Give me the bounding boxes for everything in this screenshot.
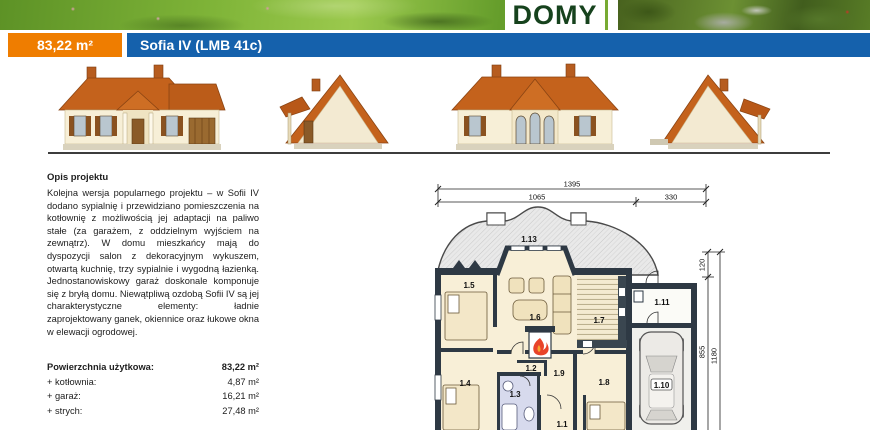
area-value: 83,22 m² bbox=[222, 360, 259, 375]
room-label-wc: 1.2 bbox=[525, 364, 537, 373]
area-value: 16,21 m² bbox=[222, 389, 259, 404]
project-description: Opis projektu Kolejna wersja popularnego… bbox=[47, 172, 259, 338]
table-row: + strych: 27,48 m² bbox=[47, 404, 259, 419]
room-label-hall: 1.9 bbox=[553, 369, 565, 378]
photo-banner: DOMY bbox=[0, 0, 870, 30]
room-label-livingroom: 1.6 bbox=[529, 313, 541, 322]
elevations-ground-line bbox=[48, 152, 830, 154]
floor-plan: 1395 1065 330 bbox=[425, 180, 725, 430]
table-row: + kotłownia: 4,87 m² bbox=[47, 375, 259, 390]
dim-1180: 1180 bbox=[710, 348, 719, 364]
area-value: 27,48 m² bbox=[222, 404, 259, 419]
dim-total-width: 1395 bbox=[564, 180, 581, 189]
area-label: + strych: bbox=[47, 404, 82, 419]
room-label-bedroom2: 1.4 bbox=[459, 379, 471, 388]
area-badge: 83,22 m² bbox=[8, 33, 122, 57]
dim-855: 855 bbox=[698, 346, 707, 359]
description-body: Kolejna wersja popularnego projektu – w … bbox=[47, 187, 259, 338]
dim-width-garage: 330 bbox=[665, 193, 678, 202]
project-sheet: DOMY 83,22 m² Sofia IV (LMB 41c) bbox=[0, 0, 870, 430]
dimension-lines-right bbox=[702, 249, 725, 430]
area-label: + garaż: bbox=[47, 389, 81, 404]
elevation-front-drawing bbox=[57, 63, 231, 155]
room-label-boilerroom: 1.11 bbox=[654, 298, 670, 307]
room-label-garage: 1.10 bbox=[654, 381, 670, 390]
room-label-bedroom3: 1.8 bbox=[598, 378, 610, 387]
room-label-bedroom1: 1.5 bbox=[463, 281, 475, 290]
fireplace-icon bbox=[525, 326, 555, 358]
areas-table: Powierzchnia użytkowa: 83,22 m² + kotłow… bbox=[47, 360, 259, 430]
boiler-icon bbox=[634, 291, 643, 302]
area-label: Powierzchnia użytkowa: bbox=[47, 360, 154, 375]
dim-width-main: 1065 bbox=[529, 193, 546, 202]
car-icon bbox=[639, 332, 684, 424]
publisher-logo: DOMY bbox=[505, 0, 605, 30]
arched-windows bbox=[516, 113, 554, 144]
room-label-bathroom: 1.3 bbox=[509, 390, 521, 399]
logo-text: DOMY bbox=[513, 3, 598, 28]
elevation-side-left-drawing bbox=[278, 63, 396, 155]
table-row: Powierzchnia użytkowa: 83,22 m² bbox=[47, 360, 259, 375]
table-row: + garaż: 16,21 m² bbox=[47, 389, 259, 404]
room-label-kitchen: 1.7 bbox=[593, 316, 605, 325]
description-heading: Opis projektu bbox=[47, 172, 259, 183]
elevation-side-right-drawing bbox=[648, 63, 776, 155]
elevation-garden-drawing bbox=[448, 61, 622, 155]
bay-windows bbox=[511, 246, 561, 251]
garden-photo-right bbox=[618, 0, 870, 30]
room-label-terrace: 1.13 bbox=[521, 235, 537, 244]
area-value: 4,87 m² bbox=[227, 375, 259, 390]
area-label: + kotłownia: bbox=[47, 375, 96, 390]
page-title: Sofia IV (LMB 41c) bbox=[127, 33, 870, 57]
room-label-entrance: 1.1 bbox=[556, 420, 568, 429]
dim-120: 120 bbox=[698, 259, 707, 272]
